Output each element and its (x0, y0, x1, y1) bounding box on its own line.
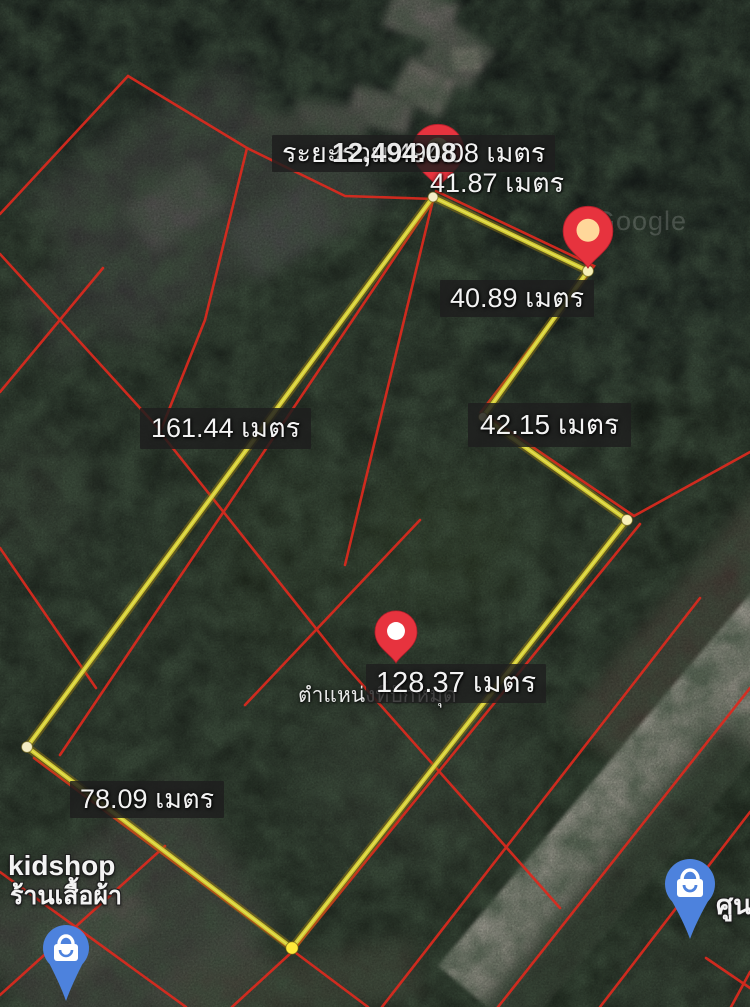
segment-label-41-87: 41.87 เมตร (430, 168, 564, 199)
segment-label-42-15: 42.15 เมตร (468, 403, 631, 447)
red-pin-center[interactable] (375, 611, 417, 663)
overlapping-area-value: 12,494.08 (332, 137, 457, 169)
segment-label-128-37: 128.37 เมตร (366, 664, 546, 703)
map-canvas[interactable]: Google (0, 0, 750, 1007)
poi-kidshop-name[interactable]: kidshop (8, 850, 115, 882)
poi-right-label[interactable]: ศูน (716, 890, 750, 921)
segment-label-78-09: 78.09 เมตร (70, 781, 224, 818)
blue-pin-kidshop[interactable] (43, 925, 89, 1001)
poi-kidshop-subtitle[interactable]: ร้านเสื้อผ้า (10, 882, 122, 911)
segment-label-40-89: 40.89 เมตร (440, 280, 594, 317)
segment-label-161-44: 161.44 เมตร (140, 408, 311, 449)
red-pin-vertex[interactable] (563, 206, 613, 268)
blue-pin-right-poi[interactable] (665, 859, 715, 939)
